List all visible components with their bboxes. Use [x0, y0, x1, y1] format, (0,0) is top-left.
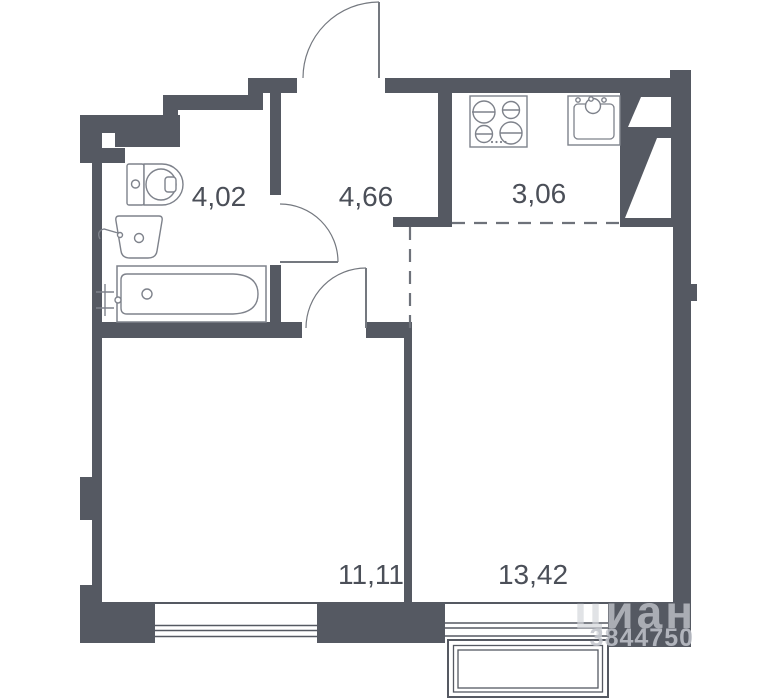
room-label-bathroom: 4,02	[192, 181, 247, 212]
floor-plan-drawing: 4,02 4,66 3,06 11,11 13,42 циан 3844750	[0, 0, 774, 700]
toilet-icon	[127, 164, 183, 205]
wall-kitchen	[438, 93, 452, 218]
watermark: циан 3844750	[574, 586, 696, 652]
room-label-kitchen: 3,06	[512, 178, 567, 209]
wall-room-divider	[404, 330, 412, 603]
wall-bathroom-right-lower	[270, 265, 281, 322]
wall-top	[385, 78, 673, 93]
room-label-hallway: 4,66	[339, 181, 394, 212]
wall-top-step2-riser	[163, 95, 178, 133]
room-label-room-left: 11,11	[338, 559, 404, 590]
wall-bottom-left-corner	[80, 602, 155, 643]
wall-bottom-middle	[317, 602, 445, 643]
vent-shaft	[620, 93, 673, 227]
wall-right	[673, 78, 691, 647]
kitchen-sink-icon	[568, 96, 620, 145]
wall-left-mid-pilaster	[80, 477, 102, 520]
wall-bathroom-top	[115, 133, 180, 147]
wall-bathroom-right-upper	[270, 93, 281, 195]
floor-plan: 4,02 4,66 3,06 11,11 13,42 циан 3844750	[0, 0, 774, 700]
wall-left-bottom-pilaster	[80, 585, 102, 602]
wall-top-step3-riser	[248, 78, 263, 110]
room-label-room-right: 13,42	[498, 559, 568, 590]
wall-left-upper	[92, 163, 102, 477]
stove-icon	[470, 96, 527, 147]
watermark-listing-id: 3844750	[590, 624, 694, 652]
wall-left-notch	[92, 148, 125, 163]
wall-kitchen-stub	[393, 217, 452, 227]
wall-right-pilaster	[685, 284, 697, 301]
wall-hall-bottom-left	[92, 322, 302, 338]
bathtub-icon	[96, 266, 266, 322]
